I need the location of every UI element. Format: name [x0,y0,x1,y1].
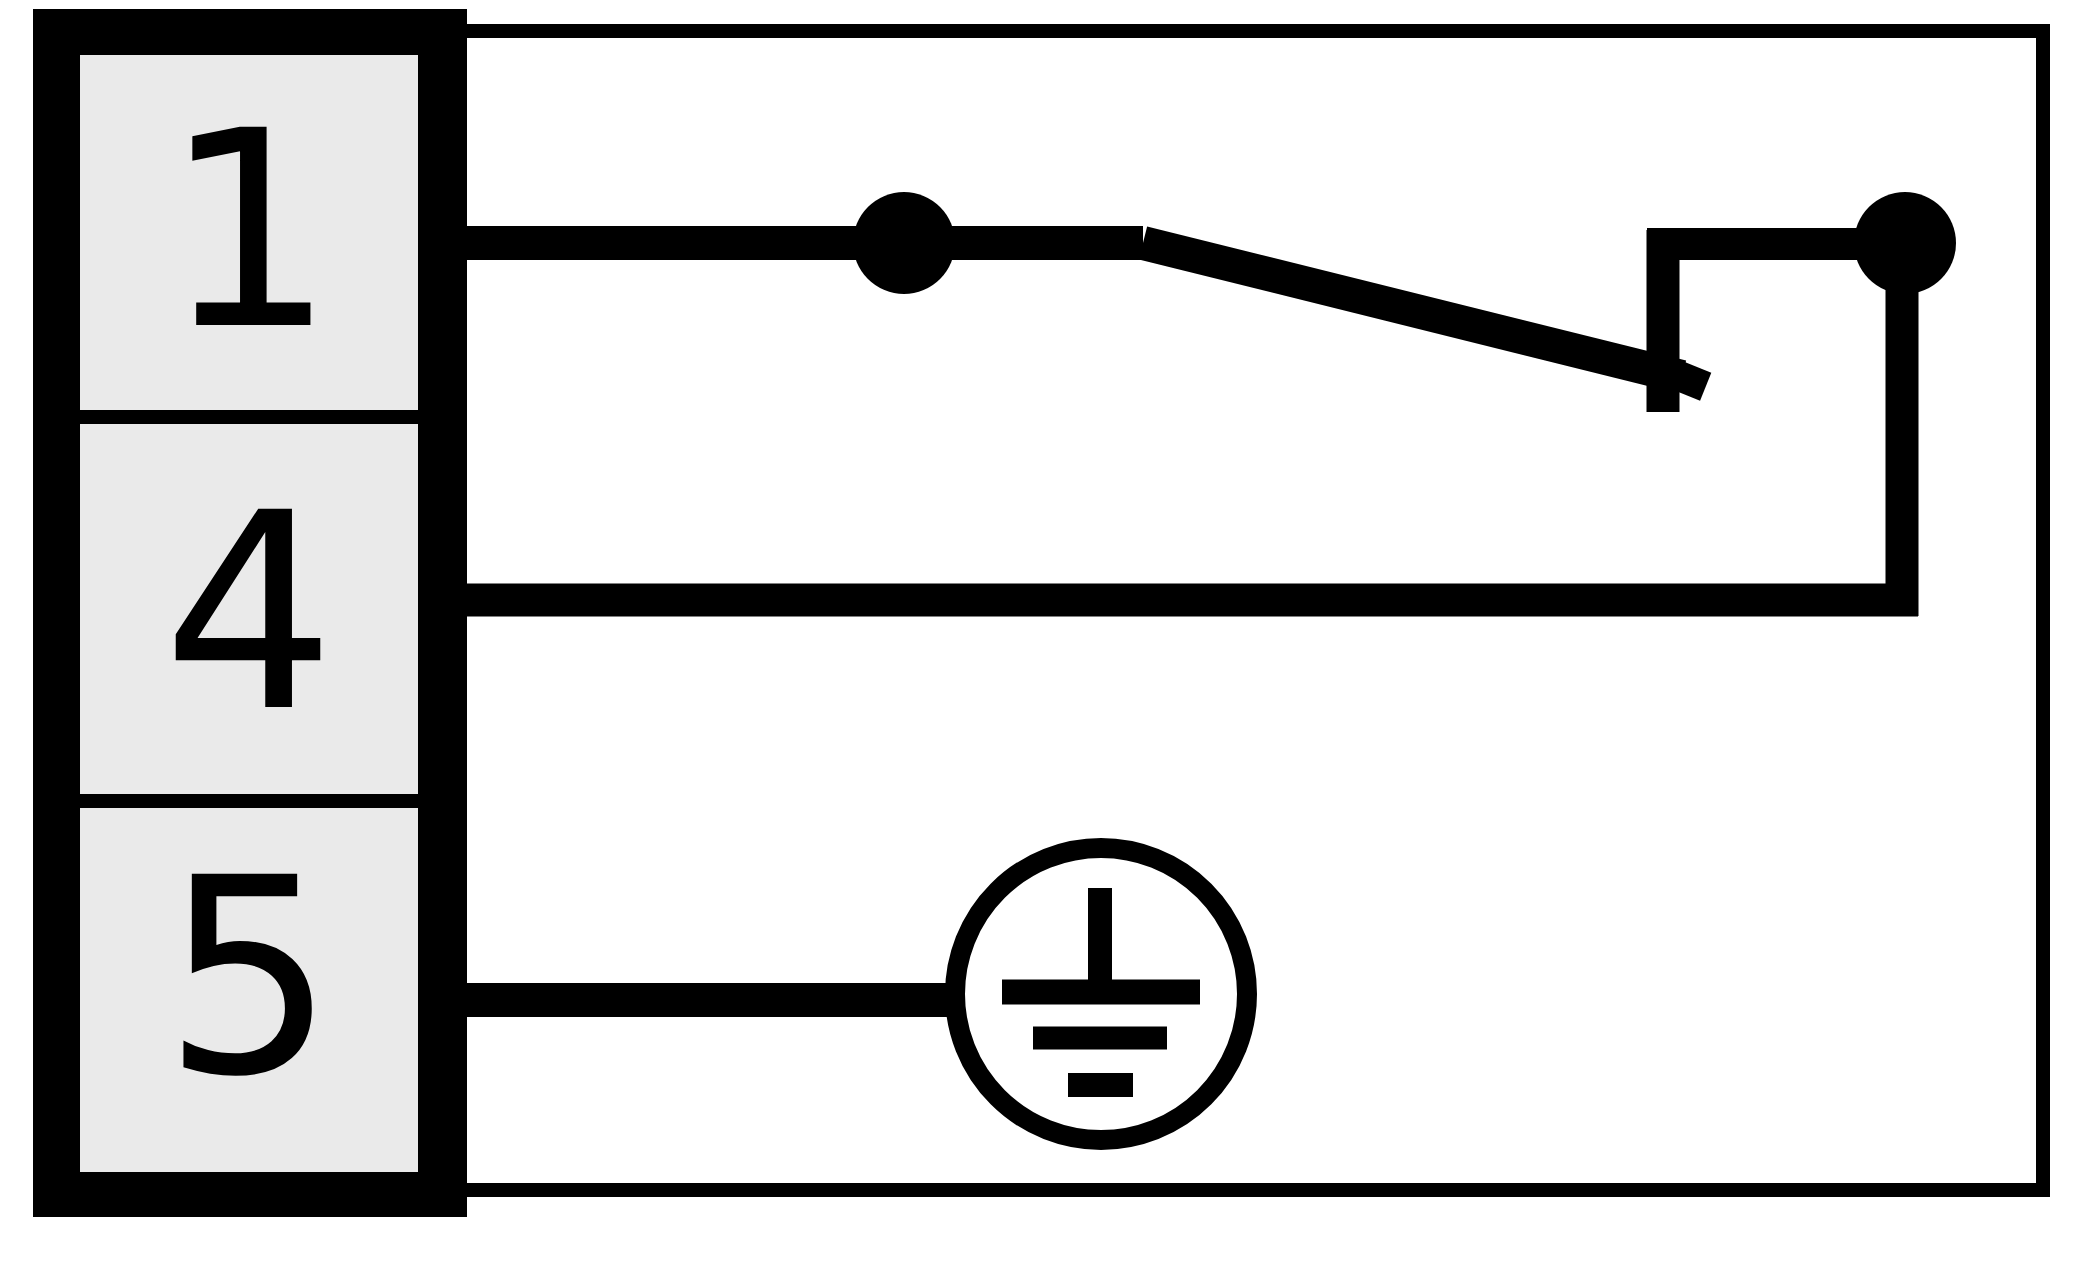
switch-blade [1143,243,1682,377]
protective-earth-ground-icon [955,848,1247,1140]
terminal-block: 1 4 5 [33,9,467,1217]
pin-5-label: 5 [162,820,335,1136]
switch-pivot-dot [853,192,955,294]
wiring-diagram-canvas: 1 4 5 [0,0,2077,1266]
pin-1-label: 1 [162,73,335,389]
pin-4-label: 4 [162,455,335,771]
wiring-diagram: 1 4 5 [0,0,2077,1266]
pin-1-circuit [450,192,1711,401]
pin-5-circuit [450,848,1247,1140]
